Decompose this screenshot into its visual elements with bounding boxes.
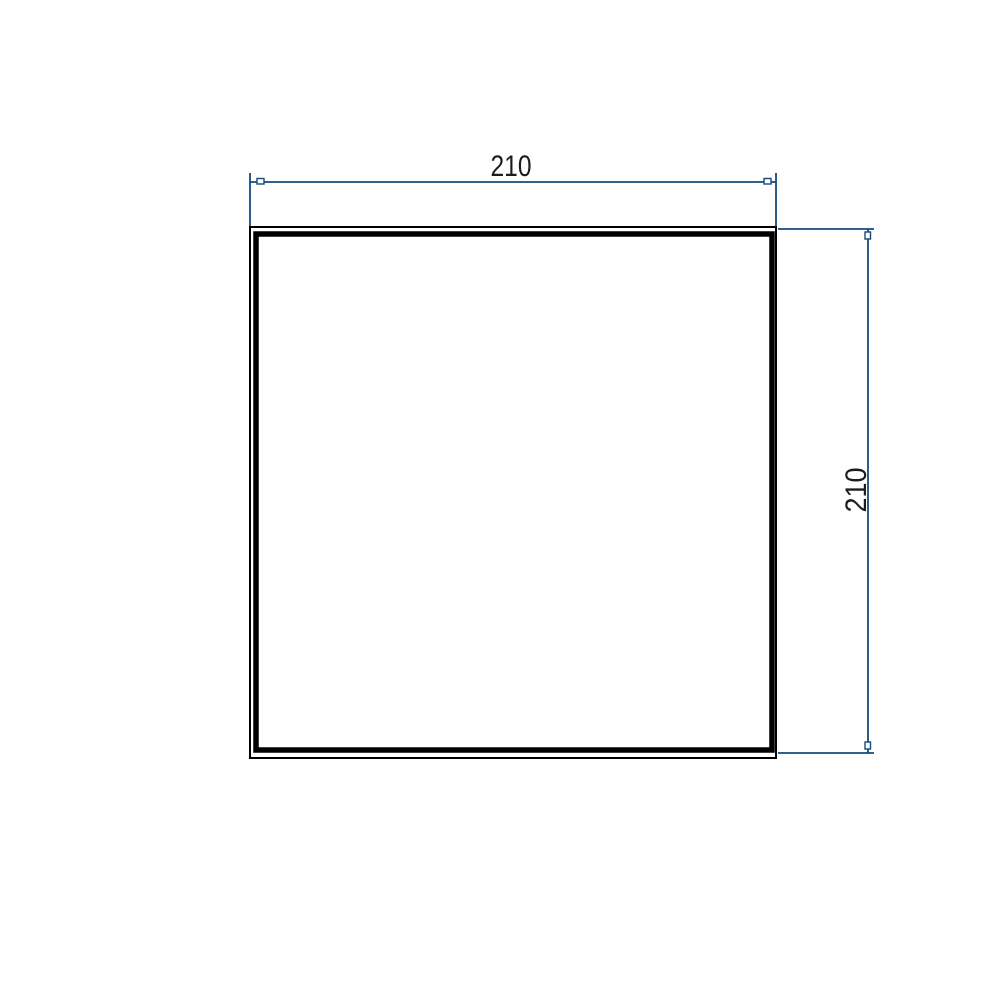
dim-v-label: 210 [840, 468, 873, 513]
dim-v-end-marker-bottom [865, 742, 871, 749]
dim-h-end-marker-right [764, 179, 771, 185]
horizontal-dimension: 210 [250, 150, 776, 226]
dim-h-end-marker-left [257, 179, 264, 185]
vertical-dimension: 210 [778, 229, 874, 753]
drawing-viewport: 210 210 [0, 0, 1000, 1000]
dim-h-label: 210 [491, 150, 532, 183]
profile-group [250, 227, 776, 758]
profile-outer-contour [250, 227, 776, 758]
profile-inner-contour [256, 234, 772, 750]
drawing-canvas: 210 210 [0, 0, 1000, 1000]
dim-v-end-marker-top [865, 232, 871, 239]
